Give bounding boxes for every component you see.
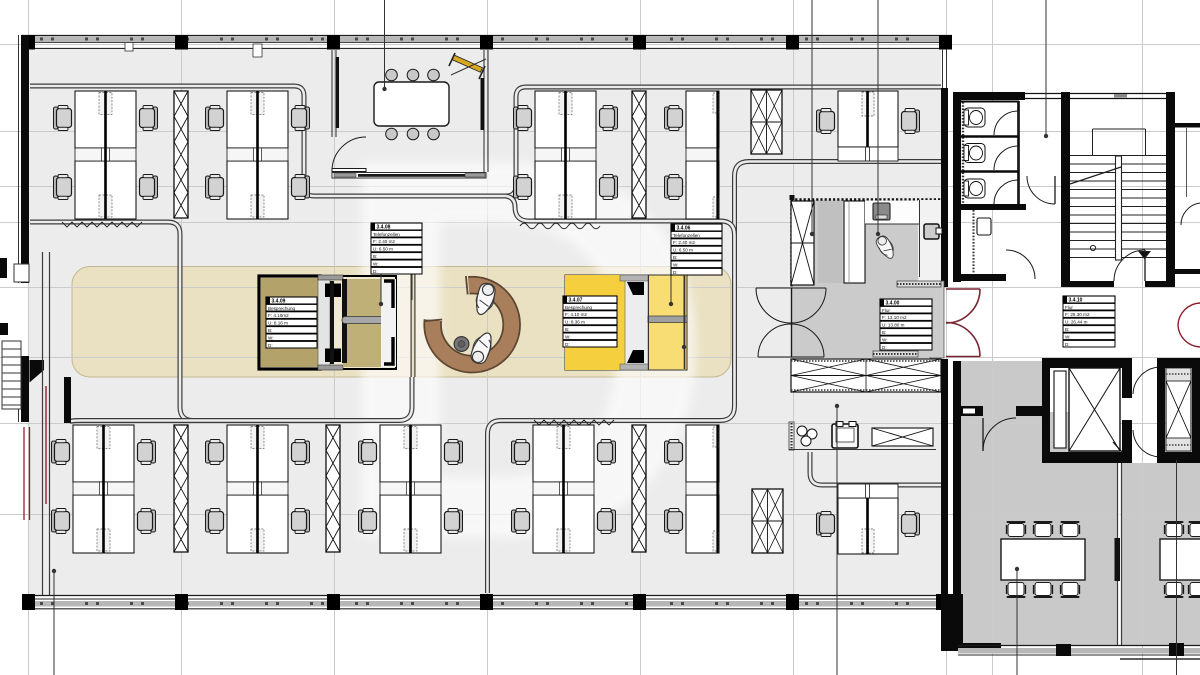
svg-text:3.4.00: 3.4.00 xyxy=(886,301,900,307)
svg-text:B:: B: xyxy=(882,330,886,335)
svg-text:D:: D: xyxy=(882,345,887,350)
svg-text:U: 6.50 m: U: 6.50 m xyxy=(373,247,393,252)
svg-text:F: 4.10 m2: F: 4.10 m2 xyxy=(565,312,587,317)
svg-text:U: 8.16 m: U: 8.16 m xyxy=(268,321,288,326)
svg-text:Besprechung: Besprechung xyxy=(268,306,296,311)
svg-text:D:: D: xyxy=(1065,342,1070,347)
svg-text:F: 2.40 m2: F: 2.40 m2 xyxy=(673,240,695,245)
svg-text:3.4.09: 3.4.09 xyxy=(272,299,286,305)
svg-text:W:: W: xyxy=(1065,334,1071,339)
svg-text:3.4.10: 3.4.10 xyxy=(1069,298,1083,304)
svg-text:Besprechung: Besprechung xyxy=(565,305,593,310)
svg-text:D:: D: xyxy=(268,343,273,348)
svg-text:B:: B: xyxy=(373,254,377,259)
svg-text:U: 26.44 m: U: 26.44 m xyxy=(1065,320,1088,325)
svg-text:D:: D: xyxy=(565,342,570,347)
svg-text:U: 8.36 m: U: 8.36 m xyxy=(565,320,585,325)
svg-text:3.4.07: 3.4.07 xyxy=(569,298,583,304)
svg-text:B:: B: xyxy=(673,255,677,260)
svg-text:Telefonzellen: Telefonzellen xyxy=(673,233,700,238)
svg-text:U: 6.50 m: U: 6.50 m xyxy=(673,248,693,253)
svg-text:B:: B: xyxy=(1065,327,1069,332)
svg-text:B:: B: xyxy=(268,328,272,333)
svg-text:3.4.06: 3.4.06 xyxy=(677,226,691,232)
svg-text:D:: D: xyxy=(673,270,678,275)
svg-text:F: 2.40 m2: F: 2.40 m2 xyxy=(373,239,395,244)
svg-text:W:: W: xyxy=(373,261,379,266)
svg-text:F: 4.10m2: F: 4.10m2 xyxy=(268,313,289,318)
svg-text:U: 13.80 m: U: 13.80 m xyxy=(882,323,905,328)
svg-text:W:: W: xyxy=(565,334,571,339)
svg-text:F: 13.10 m2: F: 13.10 m2 xyxy=(882,315,907,320)
svg-text:F: 25.30 m2: F: 25.30 m2 xyxy=(1065,312,1090,317)
svg-text:Flur: Flur xyxy=(882,308,890,313)
svg-text:3.4.08: 3.4.08 xyxy=(377,225,391,231)
svg-text:D:: D: xyxy=(373,269,378,274)
svg-text:W:: W: xyxy=(673,262,679,267)
svg-text:Telefonzellen: Telefonzellen xyxy=(373,232,400,237)
svg-text:B:: B: xyxy=(565,327,569,332)
svg-text:W:: W: xyxy=(882,337,888,342)
svg-text:Flur: Flur xyxy=(1065,305,1073,310)
svg-text:W:: W: xyxy=(268,335,274,340)
